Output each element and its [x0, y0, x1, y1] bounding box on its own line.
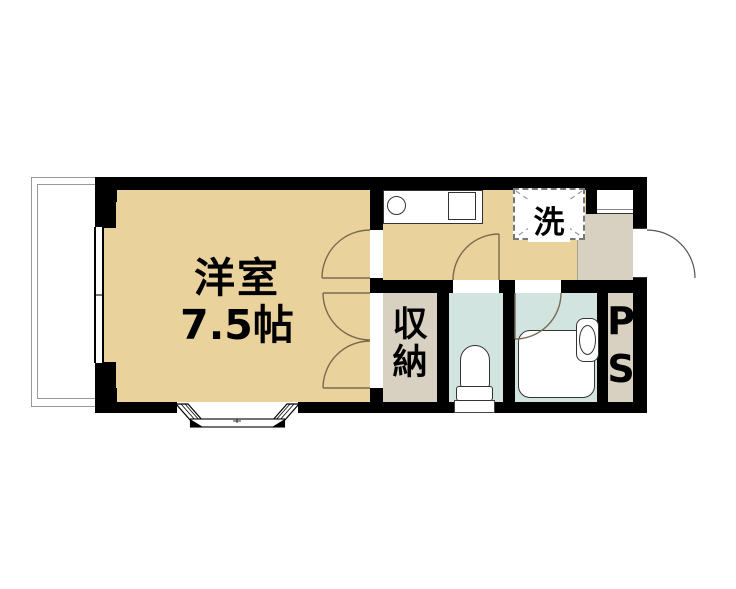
- ps-char-s: S: [602, 345, 640, 393]
- plan-linework: [0, 0, 736, 589]
- closet-char-1: 収: [388, 306, 432, 344]
- room-closet-name: 収 納: [388, 306, 432, 382]
- closet-char-2: 納: [388, 344, 432, 382]
- bay-window: [176, 404, 299, 427]
- ps-char-p: P: [602, 297, 640, 345]
- room-western-size: 7.5帖: [117, 291, 357, 351]
- pipe-space-label: P S: [602, 297, 640, 393]
- floorplan-canvas: 洋室 7.5帖 収 納 洗 P S: [0, 0, 736, 589]
- laundry-space-label: 洗: [528, 197, 570, 242]
